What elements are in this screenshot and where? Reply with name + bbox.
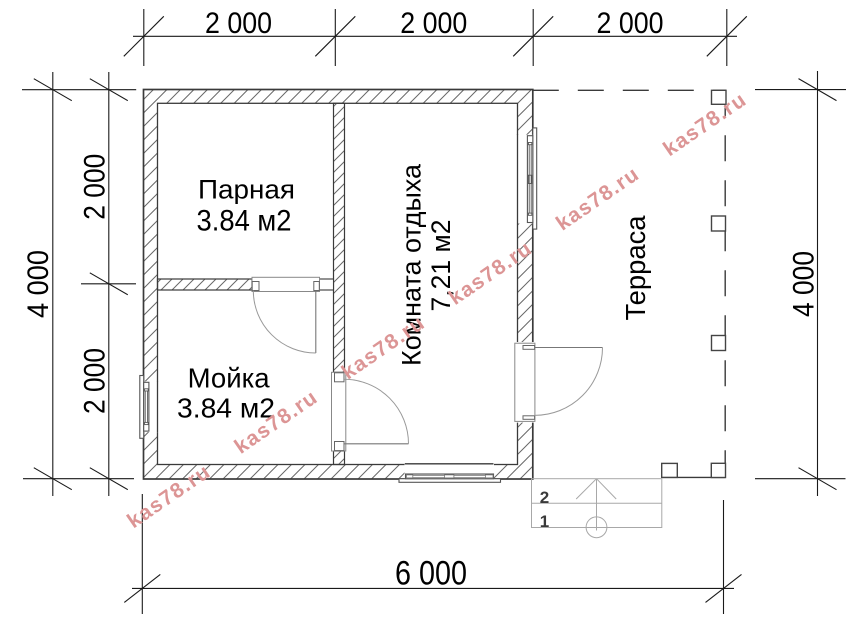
svg-text:2 000: 2 000 [78, 154, 111, 220]
svg-text:4 000: 4 000 [22, 250, 55, 318]
svg-text:2 000: 2 000 [205, 7, 272, 40]
svg-text:Мойка: Мойка [188, 363, 270, 394]
svg-text:Терраса: Терраса [620, 215, 651, 320]
svg-text:Парная: Парная [198, 175, 295, 205]
svg-text:3.84 м2: 3.84 м2 [197, 204, 292, 237]
svg-text:2: 2 [540, 488, 549, 507]
svg-text:4 000: 4 000 [788, 251, 821, 317]
svg-text:2 000: 2 000 [597, 7, 664, 40]
svg-text:1: 1 [540, 512, 549, 531]
svg-text:6 000: 6 000 [395, 555, 467, 593]
svg-text:2 000: 2 000 [400, 7, 467, 40]
svg-text:2 000: 2 000 [78, 348, 111, 414]
